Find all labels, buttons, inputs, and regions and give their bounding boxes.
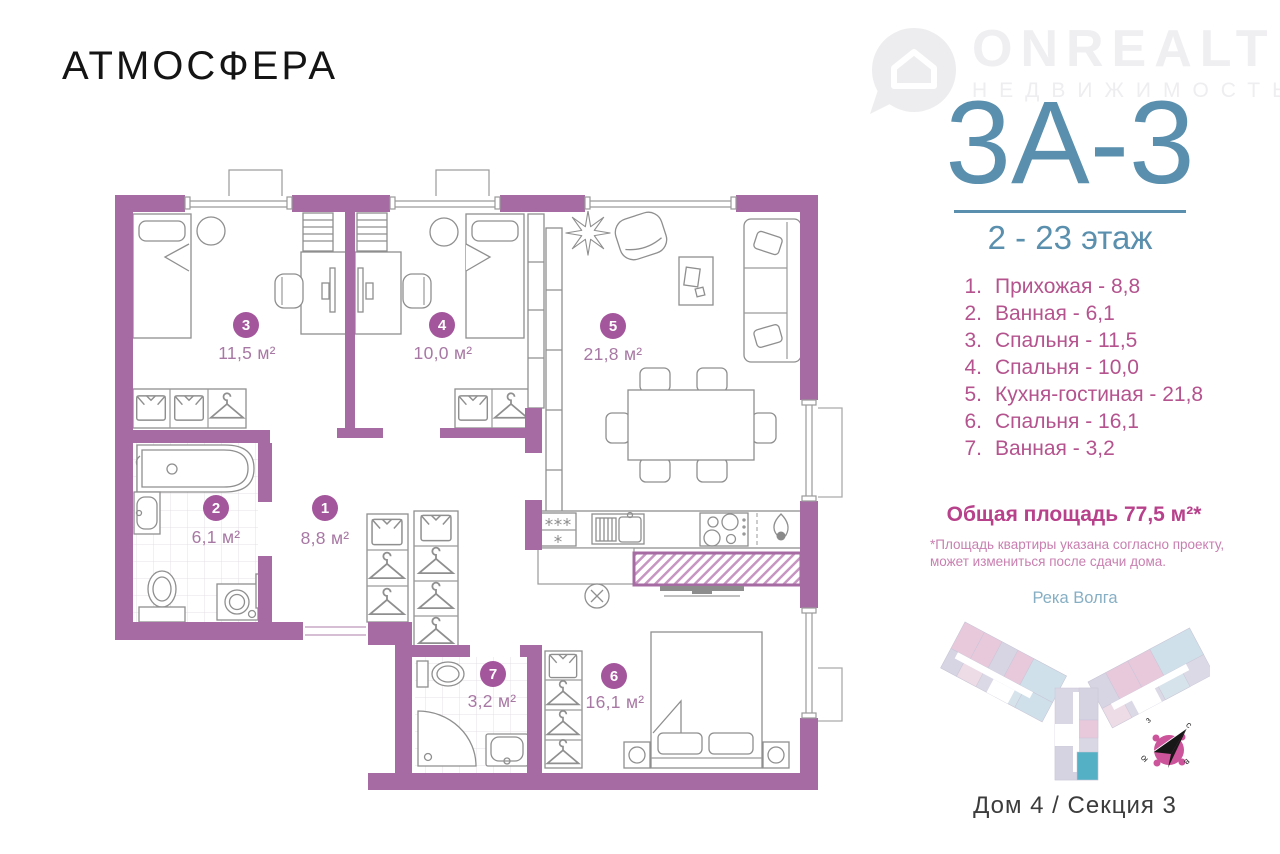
bedroom6-furniture [545, 632, 789, 768]
list-item-label: Кухня-гостиная - 21,8 [995, 384, 1203, 405]
room-4-number: 4 [438, 317, 447, 334]
duct-hatch [634, 553, 801, 585]
list-item: 6.Спальня - 16,1 [952, 411, 1203, 432]
floor-range: 2 - 23 этаж [920, 219, 1220, 257]
room-label-5: 5 21,8 м² [584, 313, 643, 364]
list-item-number: 7. [952, 438, 982, 459]
list-item-label: Спальня - 10,0 [995, 357, 1139, 378]
list-item: 5.Кухня-гостиная - 21,8 [952, 384, 1203, 405]
title-underline [954, 210, 1186, 213]
total-area: Общая площадь 77,5 м²* [914, 503, 1234, 527]
room-5-area: 21,8 м² [584, 344, 643, 364]
minimap-building-right [1088, 628, 1210, 728]
room-1-area: 8,8 м² [301, 528, 350, 548]
cabinet-column [528, 214, 562, 546]
list-item-label: Прихожая - 8,8 [995, 276, 1140, 297]
list-item-label: Ванная - 6,1 [995, 303, 1115, 324]
room-2-number: 2 [212, 500, 220, 517]
room-list: 1.Прихожая - 8,8 2.Ванная - 6,1 3.Спальн… [952, 276, 1203, 465]
minimap-building-bottom [1055, 688, 1098, 780]
balcony-window [801, 400, 817, 501]
list-item-label: Спальня - 16,1 [995, 411, 1139, 432]
facade-vent-box [436, 170, 489, 198]
unit-title-block: 3А-3 2 - 23 этаж [920, 84, 1220, 257]
room-label-4: 4 10,0 м² [414, 312, 473, 363]
area-note-line1: *Площадь квартиры указана согласно проек… [930, 536, 1270, 553]
watermark-title: ONREALT [972, 22, 1280, 77]
list-item: 2.Ванная - 6,1 [952, 303, 1203, 324]
list-item-number: 2. [952, 303, 982, 324]
list-item: 3.Спальня - 11,5 [952, 330, 1203, 351]
room-7-area: 3,2 м² [468, 691, 517, 711]
window [390, 196, 500, 211]
room-2-area: 6,1 м² [192, 527, 241, 547]
facade-vent-box [229, 170, 282, 198]
room-7-number: 7 [489, 666, 497, 683]
room-4-area: 10,0 м² [414, 343, 473, 363]
room-label-1: 1 8,8 м² [301, 495, 350, 548]
unit-code: 3А-3 [920, 84, 1220, 202]
balcony-window [801, 608, 817, 718]
balcony [818, 408, 842, 497]
river-label: Река Волга [940, 589, 1210, 608]
floor-lamp [585, 584, 609, 608]
entrance-door [305, 627, 366, 635]
list-item-number: 5. [952, 384, 982, 405]
room-label-3: 3 11,5 м² [218, 312, 276, 363]
area-note-line2: может измениться после сдачи дома. [930, 553, 1270, 570]
tv-unit [660, 586, 744, 596]
area-note: *Площадь квартиры указана согласно проек… [930, 536, 1270, 570]
minimap-building-left [941, 622, 1067, 722]
list-item-label: Ванная - 3,2 [995, 438, 1115, 459]
list-item: 4.Спальня - 10,0 [952, 357, 1203, 378]
room-6-number: 6 [610, 668, 618, 685]
compass-west: з [1143, 715, 1153, 725]
balcony [818, 668, 842, 721]
room-1-number: 1 [321, 500, 329, 517]
minimap-highlighted-section [1077, 752, 1098, 780]
compass-icon: з с ю в [1138, 715, 1195, 768]
list-item-number: 3. [952, 330, 982, 351]
floor-plan: 1 8,8 м² 2 6,1 м² 3 11,5 м² 4 10,0 м² 5 … [0, 0, 900, 854]
window [585, 196, 736, 211]
list-item-number: 1. [952, 276, 982, 297]
room-3-area: 11,5 м² [218, 343, 276, 363]
list-item: 1.Прихожая - 8,8 [952, 276, 1203, 297]
site-minimap: з с ю в [940, 608, 1210, 788]
window [185, 196, 292, 211]
room-6-area: 16,1 м² [586, 692, 645, 712]
compass-south: ю [1138, 753, 1150, 765]
list-item-number: 6. [952, 411, 982, 432]
room-3-number: 3 [242, 317, 250, 334]
list-item-number: 4. [952, 357, 982, 378]
room-label-6: 6 16,1 м² [586, 663, 645, 712]
house-section-label: Дом 4 / Секция 3 [930, 792, 1220, 820]
room-5-number: 5 [609, 318, 617, 335]
list-item: 7.Ванная - 3,2 [952, 438, 1203, 459]
list-item-label: Спальня - 11,5 [995, 330, 1137, 351]
